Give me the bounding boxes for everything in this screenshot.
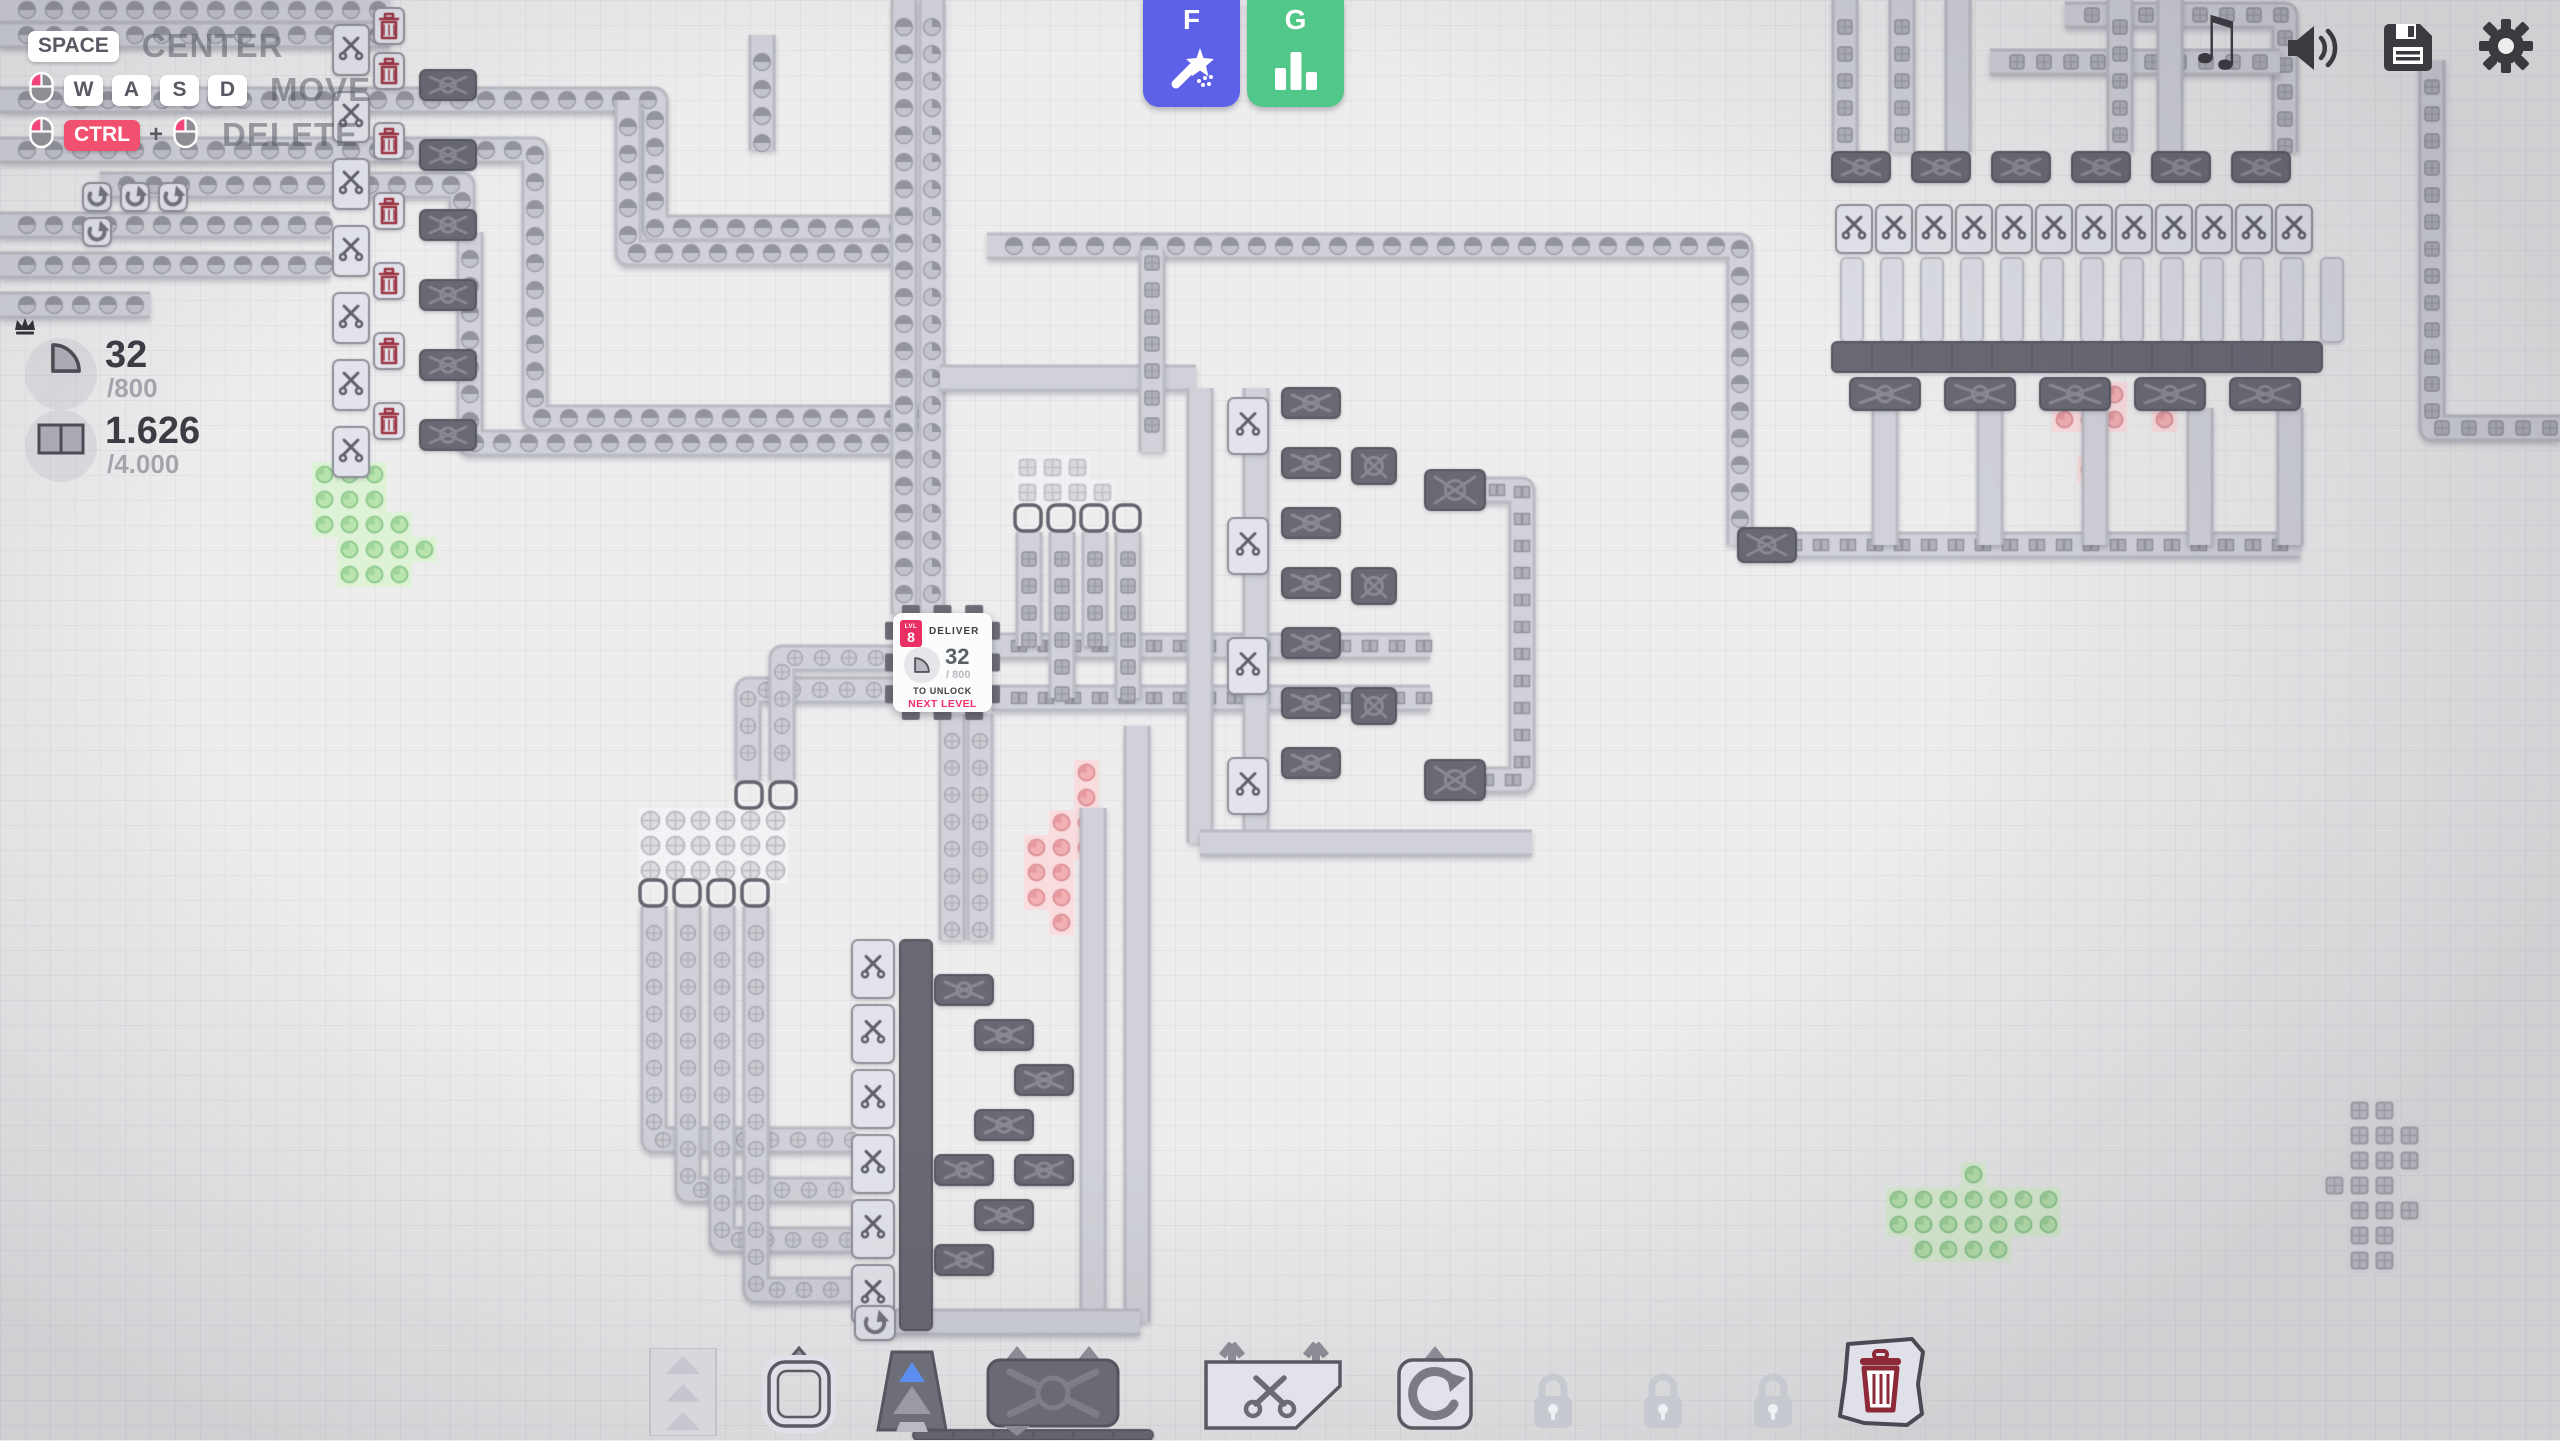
save-icon[interactable]: [2382, 22, 2434, 77]
trash-icon: [1832, 1334, 1928, 1430]
hub[interactable]: LVL 8 DELIVER 32 / 800 TO UNLOCK NEXT LE…: [893, 613, 992, 712]
settings-icon[interactable]: [2478, 18, 2534, 79]
toolbar-cutter-button[interactable]: [1196, 1342, 1350, 1441]
toolbar-balancer-button[interactable]: [984, 1344, 1122, 1441]
toolbar-locked-slot: [1640, 1370, 1686, 1437]
quarter-circle-shape-icon: [912, 655, 932, 675]
quarter-circle-shape-icon: [47, 339, 85, 382]
w-key: W: [64, 75, 103, 106]
level-number: 8: [900, 630, 922, 644]
mouse-icon: [28, 71, 55, 109]
wires-hotkey-button[interactable]: F: [1143, 0, 1240, 107]
bar-chart-icon: [1270, 44, 1322, 97]
hub-unlock-line1: TO UNLOCK: [893, 686, 992, 696]
cutter-icon: [1196, 1342, 1350, 1436]
a-key: A: [112, 75, 151, 106]
hint-row-delete: CTRL + DELETE: [28, 119, 358, 151]
lock-icon: [1530, 1370, 1576, 1432]
delete-label: DELETE: [222, 116, 358, 154]
tunnel-icon: [870, 1348, 954, 1436]
hub-title: DELIVER: [929, 626, 979, 637]
pin-goal: /800: [107, 375, 158, 401]
belt-icon: [648, 1348, 718, 1436]
toolbar-tunnel-button[interactable]: [870, 1348, 954, 1441]
lock-icon: [1750, 1370, 1796, 1432]
factory-canvas[interactable]: [0, 0, 2560, 1440]
building-toolbar: [0, 1330, 2560, 1440]
toolbar-rotator-button[interactable]: [1390, 1346, 1480, 1441]
ctrl-key: CTRL: [64, 120, 140, 151]
plus-sign: +: [149, 121, 163, 149]
sound-icon[interactable]: [2284, 22, 2342, 79]
toolbar-extractor-button[interactable]: [756, 1346, 842, 1441]
extractor-icon: [756, 1346, 842, 1436]
space-key: SPACE: [28, 31, 119, 62]
pin-value: 1.626: [105, 412, 200, 450]
toolbar-locked-slot: [1530, 1370, 1576, 1437]
hub-amount: 32: [945, 646, 969, 668]
crown-icon: [12, 316, 38, 340]
hint-row-center: SPACE CENTER: [28, 30, 283, 62]
toolbar-trash-button[interactable]: [1832, 1334, 1928, 1435]
toolbar-belt-button[interactable]: [648, 1348, 718, 1441]
mouse-icon: [172, 116, 199, 154]
rotator-icon: [1390, 1346, 1480, 1436]
magic-wand-icon: [1166, 42, 1218, 99]
d-key: D: [208, 75, 247, 106]
center-label: CENTER: [142, 27, 284, 65]
hub-shape-circle: [904, 647, 940, 683]
hint-row-move: W A S D MOVE: [28, 74, 371, 106]
hub-unlock-line2: NEXT LEVEL: [893, 698, 992, 710]
double-rect-shape-icon: [36, 422, 86, 461]
level-badge: LVL 8: [900, 620, 922, 647]
balancer-icon: [984, 1344, 1122, 1436]
pin-value: 32: [105, 336, 147, 374]
hotkey-label: G: [1285, 6, 1307, 34]
mouse-icon: [28, 116, 55, 154]
move-label: MOVE: [270, 71, 371, 109]
lock-icon: [1640, 1370, 1686, 1432]
hotkey-label: F: [1183, 6, 1200, 34]
statistics-hotkey-button[interactable]: G: [1247, 0, 1344, 107]
music-icon[interactable]: ♫: [2186, 8, 2245, 74]
goal-pins: 32 /800 1.626 /4.000: [0, 312, 260, 492]
hub-goal: / 800: [946, 670, 970, 681]
s-key: S: [160, 75, 199, 106]
toolbar-locked-slot: [1750, 1370, 1796, 1437]
pin-goal: /4.000: [107, 451, 179, 477]
